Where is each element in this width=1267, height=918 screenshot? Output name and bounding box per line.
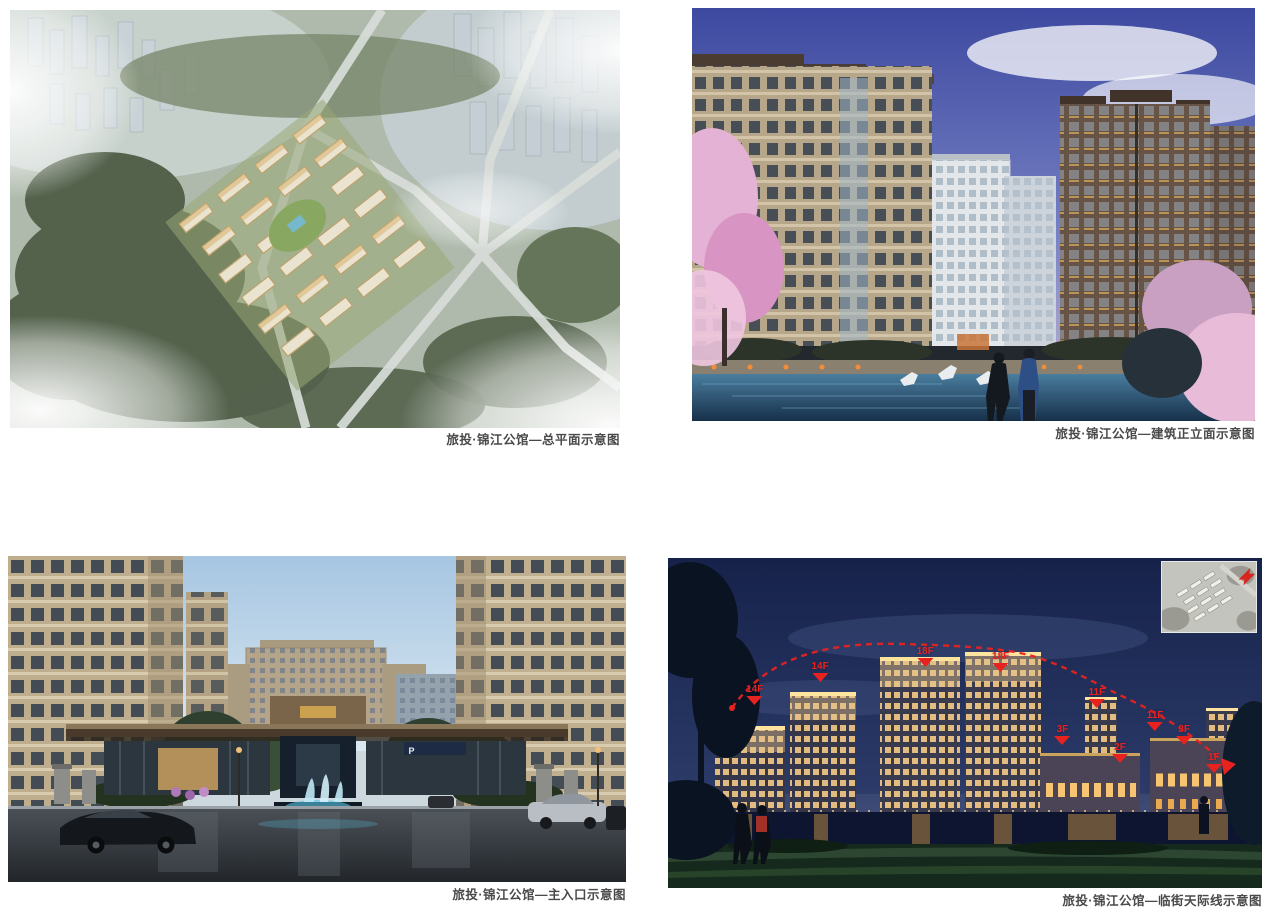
- tower-2: [790, 692, 856, 812]
- mid-rise-a: [1085, 697, 1117, 757]
- street-skyline-caption: 旅投·锦江公馆—临街天际线示意图: [668, 894, 1262, 909]
- lit-pavilion: [957, 334, 989, 350]
- low-block-a: [1040, 753, 1140, 815]
- document-page: 旅投·锦江公馆—总平面示意图: [0, 0, 1267, 918]
- site-plan-rendering: [10, 10, 620, 428]
- gate-signboard: [300, 706, 336, 718]
- lamp-light: [236, 747, 242, 753]
- front-elevation-caption: 旅投·锦江公馆—建筑正立面示意图: [692, 427, 1255, 442]
- main-entrance-image: P: [8, 556, 626, 882]
- tower-4: [965, 652, 1041, 812]
- street-skyline-image: 14F 14F 18F 18F 11F 3F 2F 11F 3F 1F: [668, 558, 1262, 888]
- front-elevation-image: [692, 8, 1255, 421]
- site-plan-caption: 旅投·锦江公馆—总平面示意图: [10, 433, 620, 448]
- parking-sign-panel: [404, 742, 466, 755]
- fog-overlay: [10, 10, 620, 428]
- center-white-tower: [924, 154, 1056, 372]
- inset-map-graphic: [1162, 562, 1256, 633]
- lit-art-wall: [158, 748, 218, 790]
- tower-3: [880, 657, 960, 812]
- main-entrance-rendering: [8, 556, 626, 882]
- site-plan-image: [10, 10, 620, 428]
- lamp-light: [595, 747, 601, 753]
- inset-map: [1161, 561, 1257, 634]
- main-entrance-caption: 旅投·锦江公馆—主入口示意图: [8, 888, 626, 903]
- front-elevation-rendering: [692, 8, 1255, 421]
